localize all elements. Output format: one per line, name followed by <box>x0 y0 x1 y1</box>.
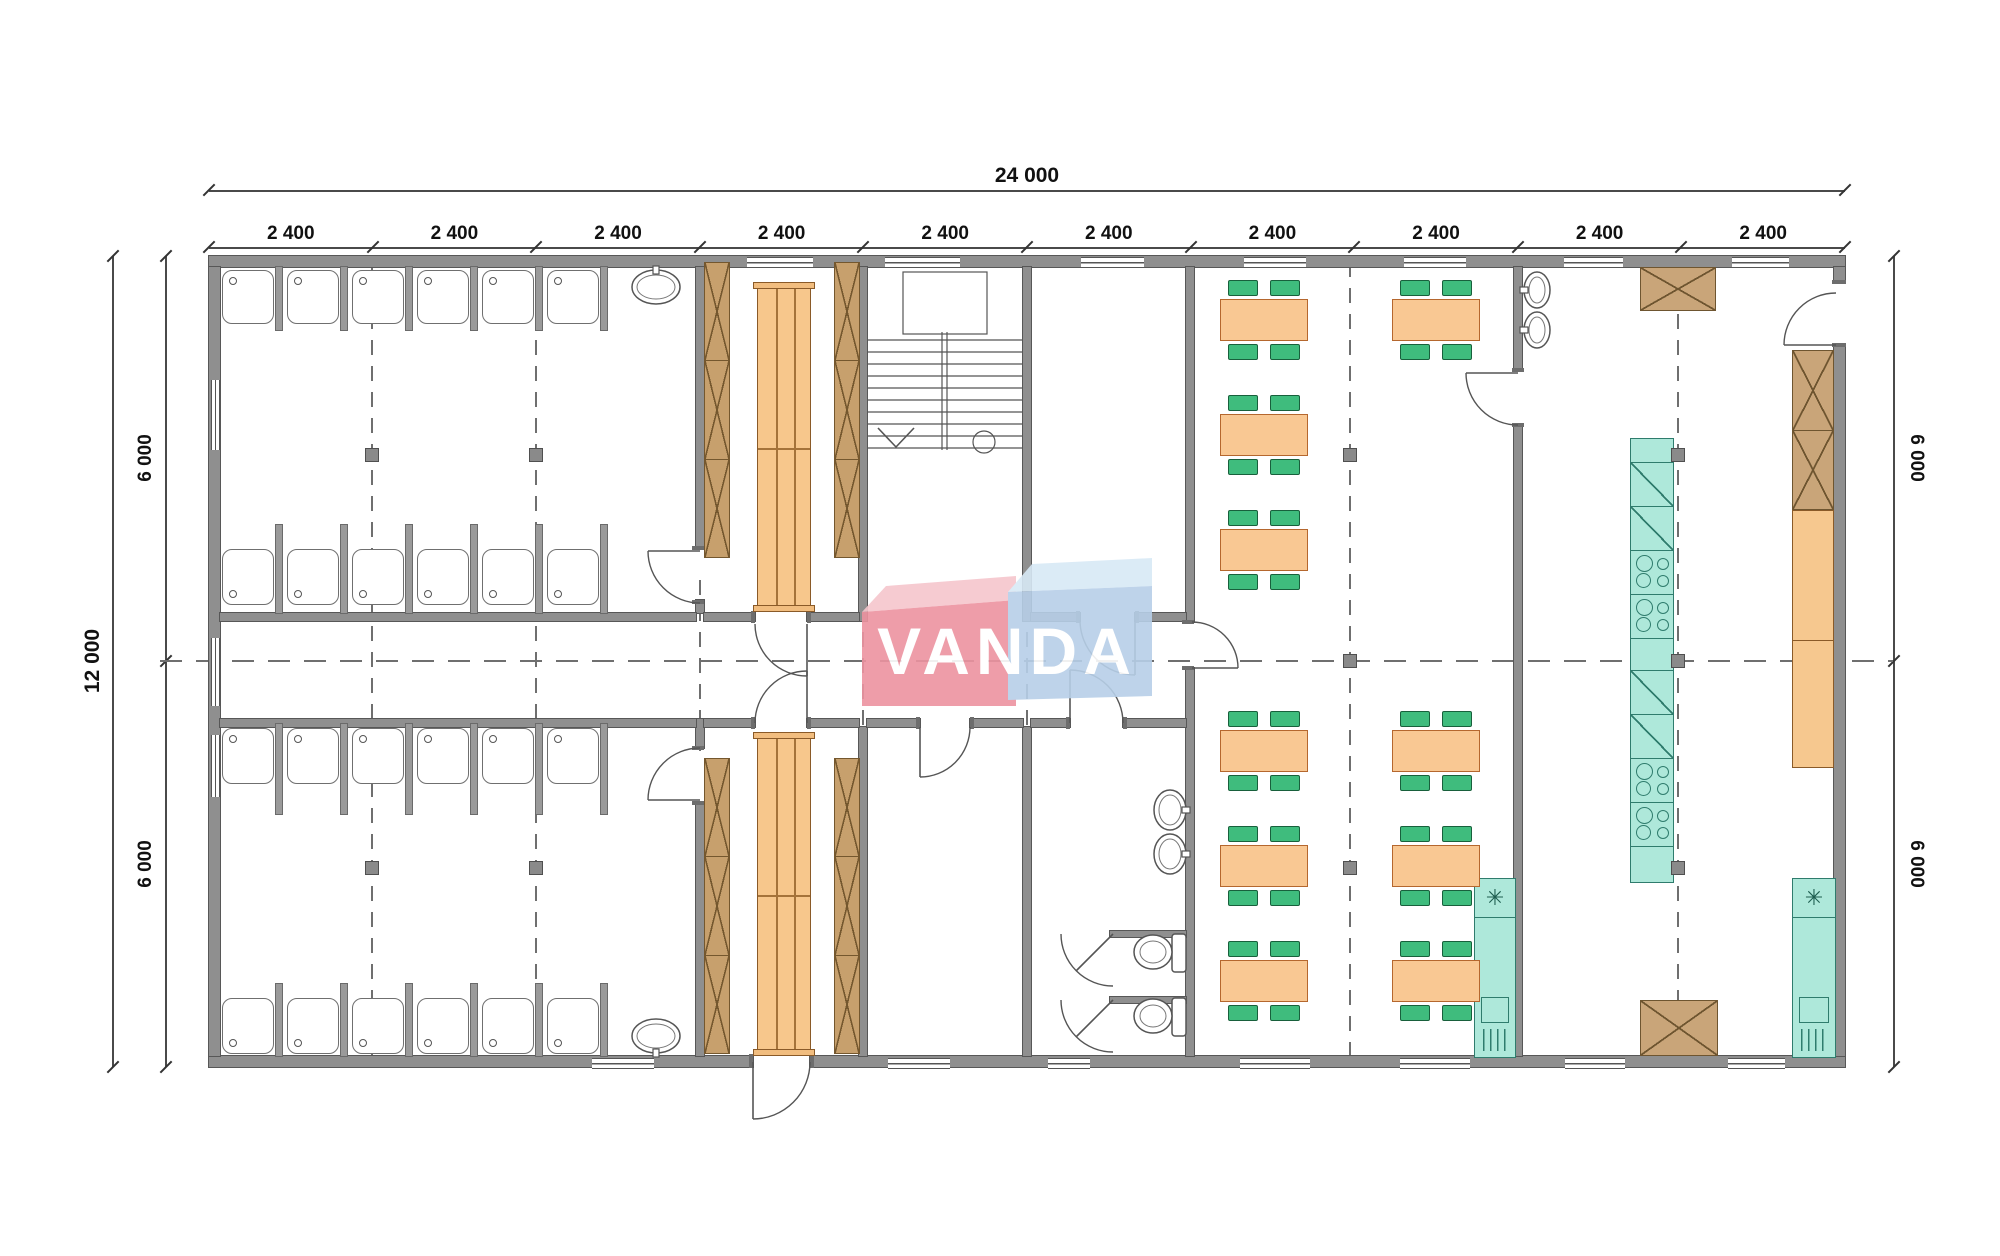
sink-tap-icon <box>653 266 659 274</box>
stair-pole <box>973 431 995 453</box>
sink-tap-icon <box>1182 807 1190 813</box>
toilet-tank <box>1172 998 1186 1036</box>
sink-tap-icon <box>653 1049 659 1057</box>
sink-tap-icon <box>1182 851 1190 857</box>
door-swing-arc <box>1784 293 1836 345</box>
door-swing-arc <box>753 1062 810 1119</box>
door-leaf <box>1076 934 1113 971</box>
door-leaf <box>1076 1000 1113 1037</box>
door-swing-arc <box>648 748 700 800</box>
toilet-tank <box>1172 934 1186 972</box>
vanda-logo: VANDA <box>836 548 1196 758</box>
door-swing-arc <box>755 671 807 723</box>
sink-tap-icon <box>1520 327 1528 333</box>
door-swing-arc <box>755 624 807 676</box>
sink-tap-icon <box>1520 287 1528 293</box>
logo-text: VANDA <box>877 614 1137 688</box>
door-swing-arc <box>1192 622 1238 668</box>
floor-plan-canvas: 24 000 2 4002 4002 4002 4002 4002 4002 4… <box>0 0 2000 1256</box>
stair-direction-arrow <box>878 428 914 447</box>
stair-upper-flight-outline <box>903 272 987 334</box>
door-swing-arc <box>1466 373 1518 425</box>
door-swing-arc <box>648 551 700 603</box>
